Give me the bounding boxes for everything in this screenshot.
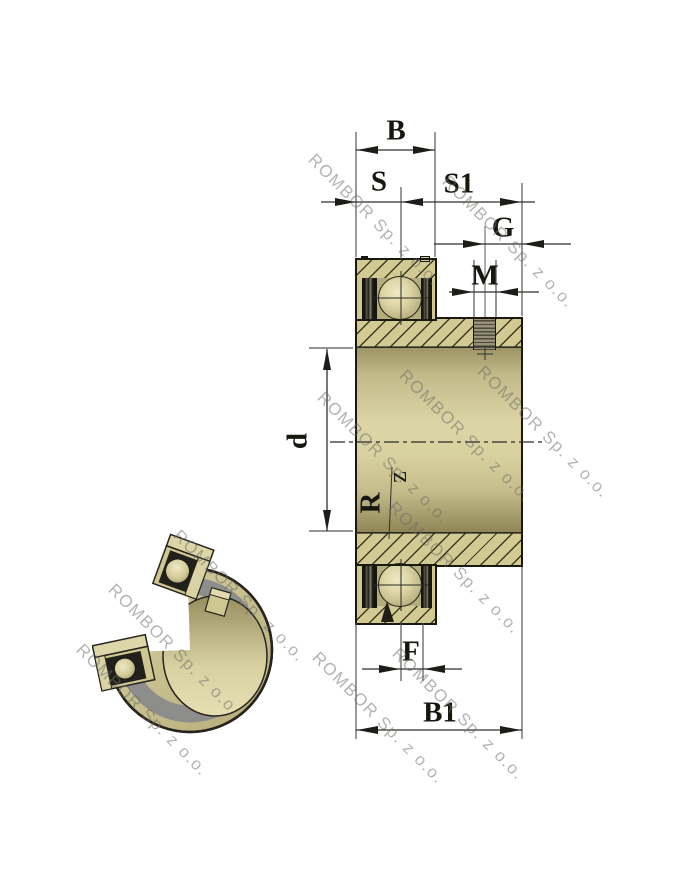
label-roughness-z: z [385, 471, 411, 483]
bearing-3d-view [92, 528, 287, 750]
dimension-lines [321, 150, 571, 730]
label-d: d [284, 433, 313, 449]
label-R: R [357, 493, 386, 514]
label-G: G [492, 214, 515, 243]
drawing-canvas: B S S1 G M d R z F B1 ROMBOR Sp. z o.o. … [0, 0, 700, 869]
set-screw-center-mark [477, 348, 493, 360]
label-B1: B1 [423, 699, 457, 728]
label-M: M [471, 262, 498, 291]
label-S1: S1 [444, 170, 475, 199]
lube-notch [381, 601, 394, 622]
ball-crosshairs [374, 271, 428, 611]
label-B: B [386, 117, 405, 146]
label-S: S [371, 168, 387, 197]
label-F: F [402, 638, 420, 667]
